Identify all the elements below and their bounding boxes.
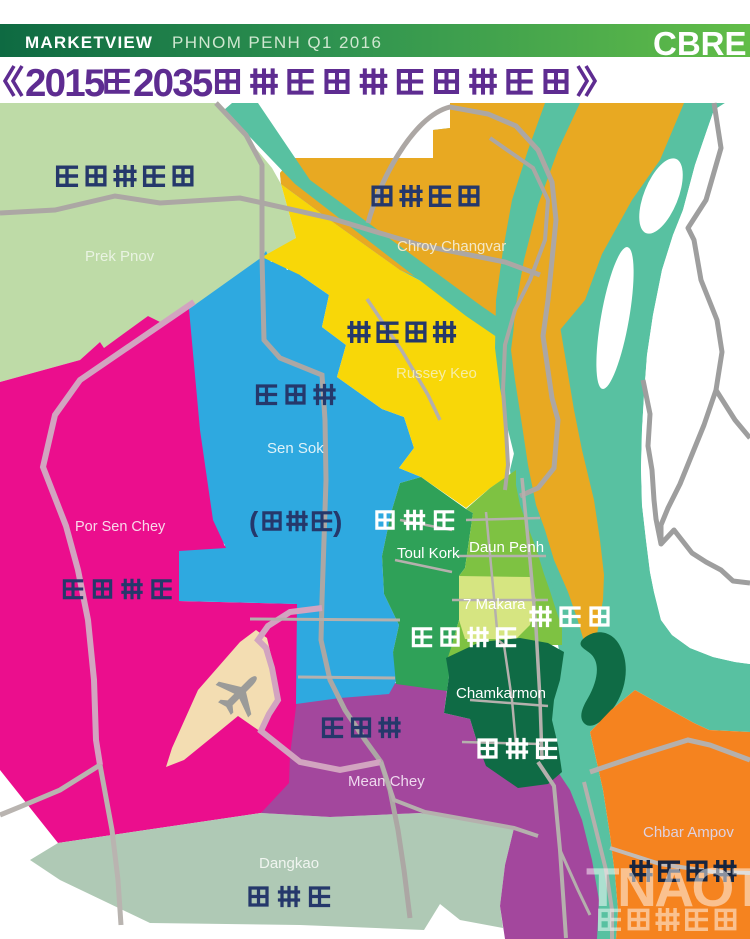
svg-text:Sen Sok: Sen Sok <box>267 440 324 457</box>
svg-text:2035: 2035 <box>133 62 213 105</box>
svg-text:CBRE: CBRE <box>653 25 747 62</box>
svg-text:7 Makara: 7 Makara <box>463 596 526 613</box>
svg-text:Chamkarmon: Chamkarmon <box>456 685 546 702</box>
svg-text:Russey Keo: Russey Keo <box>396 365 477 382</box>
svg-text:Toul Kork: Toul Kork <box>397 545 460 562</box>
svg-text:MARKETVIEW: MARKETVIEW <box>25 33 153 52</box>
svg-text:Dangkao: Dangkao <box>259 855 319 872</box>
svg-text:2015: 2015 <box>25 62 105 105</box>
svg-text:Chroy Changvar: Chroy Changvar <box>397 238 506 255</box>
svg-text:Prek Pnov: Prek Pnov <box>85 248 155 265</box>
svg-text:(: ( <box>249 506 259 537</box>
svg-text:Por Sen Chey: Por Sen Chey <box>75 519 166 535</box>
svg-text:Chbar Ampov: Chbar Ampov <box>643 824 734 841</box>
svg-text:Mean Chey: Mean Chey <box>348 773 425 790</box>
svg-text:): ) <box>333 506 342 537</box>
svg-text:Daun Penh: Daun Penh <box>469 539 544 556</box>
svg-text:PHNOM PENH Q1 2016: PHNOM PENH Q1 2016 <box>172 33 382 52</box>
